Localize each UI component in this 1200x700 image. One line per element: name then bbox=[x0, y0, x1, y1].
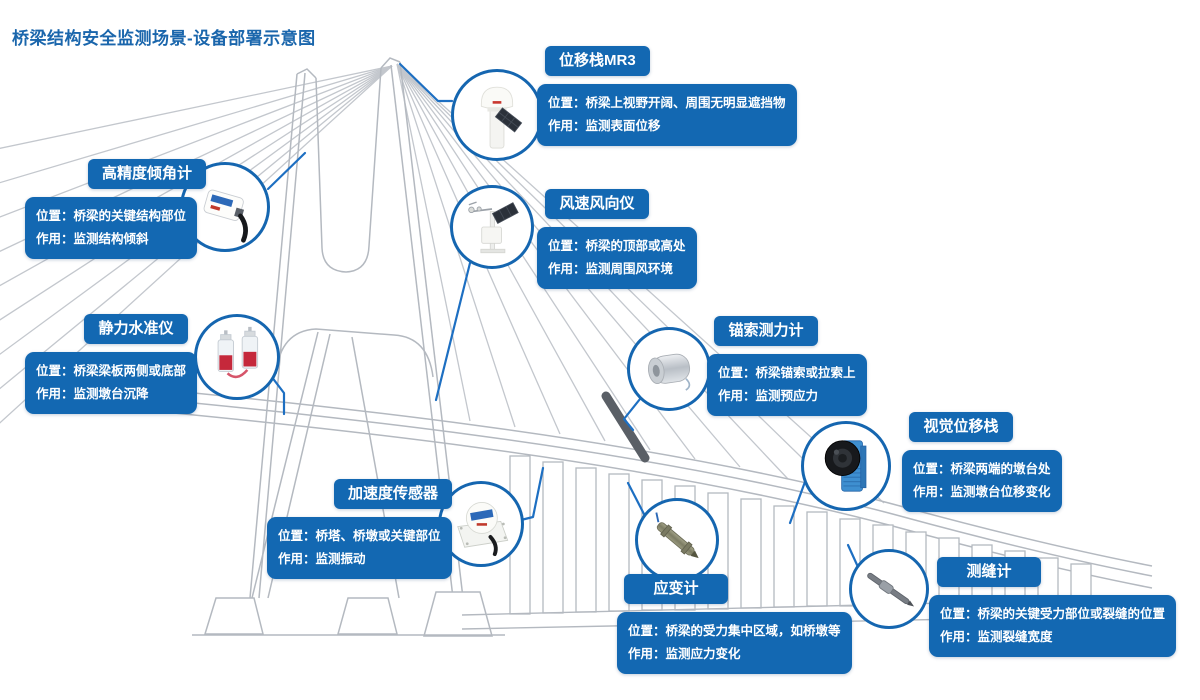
device-desc-strain-gauge: 位置：桥梁的受力集中区域，如桥墩等 作用：监测应力变化 bbox=[617, 612, 852, 674]
device-desc-hydrostatic-level: 位置：桥梁梁板两侧或底部 作用：监测墩台沉降 bbox=[25, 352, 197, 414]
gnss-displacement-station-icon bbox=[457, 75, 537, 155]
device-badge-vision-station bbox=[801, 421, 891, 511]
device-position: 位置：桥梁梁板两侧或底部 bbox=[36, 360, 186, 383]
device-position: 位置：桥梁两端的墩台处 bbox=[913, 458, 1051, 481]
device-function: 作用：监测裂缝宽度 bbox=[940, 626, 1165, 649]
device-position: 位置：桥梁的受力集中区域，如桥墩等 bbox=[628, 620, 841, 643]
device-position: 位置：桥梁锚索或拉索上 bbox=[718, 362, 856, 385]
device-title-cable-load-cell: 锚索测力计 bbox=[714, 316, 818, 346]
device-desc-vision-station: 位置：桥梁两端的墩台处 作用：监测墩台位移变化 bbox=[902, 450, 1062, 512]
device-title-hydrostatic-level: 静力水准仪 bbox=[84, 314, 188, 344]
device-desc-anemometer: 位置：桥梁的顶部或高处 作用：监测周围风环境 bbox=[537, 227, 697, 289]
connector-line bbox=[790, 479, 806, 523]
tower-feet bbox=[192, 592, 505, 636]
device-position: 位置：桥梁的顶部或高处 bbox=[548, 235, 686, 258]
page-title: 桥梁结构安全监测场景-设备部署示意图 bbox=[12, 24, 316, 49]
strain-gauge-icon bbox=[641, 504, 713, 576]
crack-meter-icon bbox=[855, 555, 923, 623]
connector-line bbox=[436, 263, 470, 400]
device-badge-cable-load-cell bbox=[627, 327, 711, 411]
device-function: 作用：监测墩台沉降 bbox=[36, 383, 186, 406]
device-desc-accelerometer: 位置：桥塔、桥墩或关键部位 作用：监测振动 bbox=[267, 517, 452, 579]
device-position: 位置：桥塔、桥墩或关键部位 bbox=[278, 525, 441, 548]
device-function: 作用：监测振动 bbox=[278, 548, 441, 571]
device-title-accelerometer: 加速度传感器 bbox=[334, 479, 452, 509]
device-badge-crack-meter bbox=[849, 549, 929, 629]
device-position: 位置：桥梁的关键结构部位 bbox=[36, 205, 186, 228]
device-title-anemometer: 风速风向仪 bbox=[545, 189, 649, 219]
accelerometer-icon bbox=[444, 487, 518, 561]
device-title-crack-meter: 测缝计 bbox=[937, 557, 1041, 587]
cable-sensor-highlight bbox=[606, 396, 645, 458]
device-function: 作用：监测应力变化 bbox=[628, 643, 841, 666]
device-badge-displacement-station bbox=[451, 69, 543, 161]
device-badge-hydrostatic-level bbox=[194, 314, 280, 400]
device-function: 作用：监测表面位移 bbox=[548, 115, 786, 138]
device-function: 作用：监测预应力 bbox=[718, 385, 856, 408]
device-function: 作用：监测周围风环境 bbox=[548, 258, 686, 281]
device-function: 作用：监测结构倾斜 bbox=[36, 228, 186, 251]
device-desc-crack-meter: 位置：桥梁的关键受力部位或裂缝的位置 作用：监测裂缝宽度 bbox=[929, 595, 1176, 657]
device-position: 位置：桥梁的关键受力部位或裂缝的位置 bbox=[940, 603, 1165, 626]
device-position: 位置：桥梁上视野开阔、周围无明显遮挡物 bbox=[548, 92, 786, 115]
device-badge-anemometer bbox=[450, 185, 534, 269]
bridge-monitoring-diagram: 桥梁结构安全监测场景-设备部署示意图 位移栈MR3 位置：桥梁上视野开阔、周围无… bbox=[0, 0, 1200, 700]
device-title-displacement-station: 位移栈MR3 bbox=[545, 46, 650, 76]
device-badge-strain-gauge bbox=[635, 498, 719, 582]
device-title-strain-gauge: 应变计 bbox=[624, 574, 728, 604]
vision-camera-icon bbox=[807, 427, 885, 505]
device-desc-displacement-station: 位置：桥梁上视野开阔、周围无明显遮挡物 作用：监测表面位移 bbox=[537, 84, 797, 146]
weather-station-icon bbox=[456, 191, 528, 263]
device-title-tiltmeter: 高精度倾角计 bbox=[88, 159, 206, 189]
device-title-vision-station: 视觉位移栈 bbox=[909, 412, 1013, 442]
anchor-load-cell-icon bbox=[633, 333, 705, 405]
hydrostatic-level-icon bbox=[200, 320, 274, 394]
device-desc-tiltmeter: 位置：桥梁的关键结构部位 作用：监测结构倾斜 bbox=[25, 197, 197, 259]
device-desc-cable-load-cell: 位置：桥梁锚索或拉索上 作用：监测预应力 bbox=[707, 354, 867, 416]
device-function: 作用：监测墩台位移变化 bbox=[913, 481, 1051, 504]
